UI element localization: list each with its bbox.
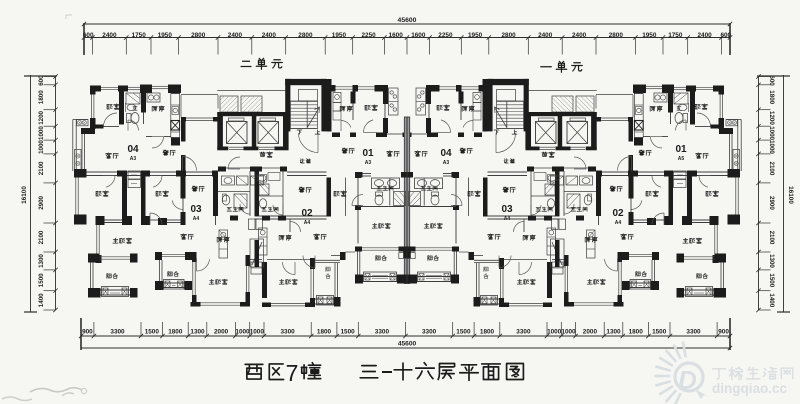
svg-text:A4: A4 [193,216,200,222]
svg-text:1500: 1500 [38,273,45,287]
svg-text:600: 600 [768,75,775,86]
svg-text:02: 02 [612,208,624,219]
svg-text:1800: 1800 [317,329,332,336]
svg-text:A3: A3 [365,160,372,166]
svg-text:2400: 2400 [102,32,117,39]
svg-text:2400: 2400 [572,32,587,39]
svg-text:1200: 1200 [768,111,775,125]
svg-text:1000: 1000 [250,329,265,336]
svg-text:1000: 1000 [38,126,45,140]
svg-text:2400: 2400 [697,32,712,39]
svg-text:A4: A4 [304,220,311,226]
svg-text:900: 900 [82,329,93,336]
svg-text:2000: 2000 [214,329,229,336]
svg-text:2800: 2800 [191,32,206,39]
svg-text:1000: 1000 [768,126,775,140]
svg-text:1200: 1200 [38,110,45,124]
svg-text:1000: 1000 [768,140,775,154]
svg-text:A4: A4 [504,216,511,222]
svg-text:1000: 1000 [38,140,45,154]
svg-text:1000: 1000 [235,329,250,336]
svg-text:2900: 2900 [768,196,775,210]
svg-text:600: 600 [83,32,94,39]
svg-text:1500: 1500 [145,329,160,336]
svg-text:1500: 1500 [340,329,355,336]
svg-text:2800: 2800 [609,32,624,39]
svg-text:A3: A3 [130,156,137,162]
svg-text:2900: 2900 [38,195,45,209]
svg-text:3300: 3300 [516,329,531,336]
svg-text:45600: 45600 [398,17,417,24]
svg-text:1500: 1500 [768,273,775,287]
svg-text:3300: 3300 [375,329,390,336]
svg-text:2100: 2100 [38,161,45,175]
svg-text:16100: 16100 [21,186,28,204]
svg-text:3300: 3300 [110,329,125,336]
svg-text:3300: 3300 [686,329,701,336]
svg-text:03: 03 [190,204,202,215]
svg-text:1300: 1300 [606,329,621,336]
svg-text:1800: 1800 [168,329,183,336]
svg-text:04: 04 [440,148,452,159]
svg-text:1800: 1800 [768,90,775,104]
svg-text:2800: 2800 [501,32,516,39]
svg-text:2400: 2400 [228,32,243,39]
svg-text:2400: 2400 [262,32,277,39]
svg-text:1800: 1800 [480,329,495,336]
svg-text:1000: 1000 [547,329,562,336]
svg-text:01: 01 [362,148,374,159]
svg-text:1950: 1950 [468,32,483,39]
svg-text:7: 7 [286,360,299,386]
svg-text:2100: 2100 [768,162,775,176]
svg-text:2800: 2800 [298,32,313,39]
svg-text:1400: 1400 [768,293,775,307]
svg-text:2400: 2400 [538,32,553,39]
svg-text:2000: 2000 [583,329,598,336]
svg-text:1500: 1500 [652,329,667,336]
svg-text:02: 02 [301,208,313,219]
svg-text:2100: 2100 [38,230,45,244]
svg-text:D: D [678,365,697,395]
svg-text:900: 900 [718,329,729,336]
svg-text:2100: 2100 [768,231,775,245]
svg-text:600: 600 [720,32,731,39]
svg-text:1000: 1000 [561,329,576,336]
svg-text:03: 03 [501,204,513,215]
svg-text:1800: 1800 [38,90,45,104]
svg-text:1600: 1600 [411,32,426,39]
svg-text:1600: 1600 [389,32,404,39]
svg-text:1950: 1950 [158,32,173,39]
svg-text:01: 01 [675,144,687,155]
svg-text:1300: 1300 [38,254,45,268]
svg-text:1950: 1950 [332,32,347,39]
svg-text:1500: 1500 [456,329,471,336]
svg-text:1400: 1400 [38,293,45,307]
svg-text:1300: 1300 [190,329,205,336]
svg-text:1750: 1750 [132,32,147,39]
svg-text:3300: 3300 [422,329,437,336]
svg-text:16100: 16100 [787,186,794,204]
svg-text:A4: A4 [615,220,622,226]
svg-text:2250: 2250 [361,32,376,39]
svg-text:A5: A5 [678,156,685,162]
svg-text:1300: 1300 [768,254,775,268]
svg-text:dingqiao.cc: dingqiao.cc [712,381,788,396]
svg-text:3300: 3300 [280,329,295,336]
svg-text:1750: 1750 [668,32,683,39]
svg-text:1950: 1950 [642,32,657,39]
svg-text:1800: 1800 [629,329,644,336]
svg-text:04: 04 [127,144,139,155]
svg-text:2250: 2250 [438,32,453,39]
svg-text:45600: 45600 [398,341,417,348]
svg-text:A3: A3 [443,160,450,166]
